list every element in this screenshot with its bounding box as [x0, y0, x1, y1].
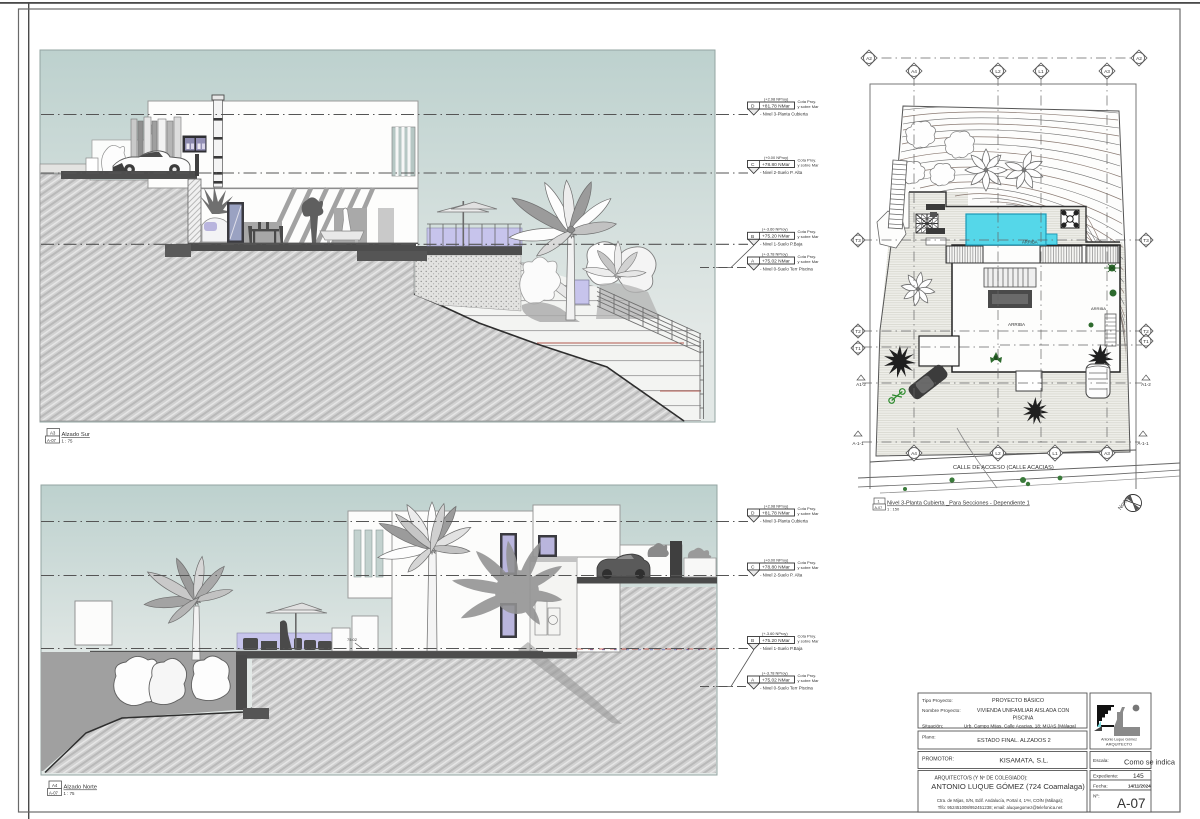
- svg-text:(+2.98 NProy): (+2.98 NProy): [764, 503, 789, 508]
- svg-text:1 : 75: 1 : 75: [64, 791, 76, 796]
- svg-text:A-07: A-07: [1117, 796, 1146, 811]
- svg-text:A-07: A-07: [47, 438, 57, 443]
- svg-text:1 : 150: 1 : 150: [887, 507, 900, 512]
- svg-text:(+0.00 NProy): (+0.00 NProy): [764, 557, 789, 562]
- svg-text:KISAMATA, S.L.: KISAMATA, S.L.: [999, 758, 1048, 765]
- svg-text:ARRIBA: ARRIBA: [1008, 322, 1026, 327]
- svg-text:Ctra. de Mijas, S/N, Edif. And: Ctra. de Mijas, S/N, Edif. Andalucía, Po…: [937, 798, 1063, 803]
- svg-text:Como se indica: Como se indica: [1124, 758, 1176, 767]
- svg-text:Expediente:: Expediente:: [1093, 774, 1118, 780]
- svg-text:T3: T3: [855, 238, 861, 244]
- svg-text:Nombre Proyecto:: Nombre Proyecto:: [922, 708, 961, 714]
- svg-text:CALLE DE ACCESO (CALLE ACACIAS: CALLE DE ACCESO (CALLE ACACIAS): [953, 465, 1054, 471]
- svg-text:+78.80 NMar: +78.80 NMar: [762, 564, 790, 570]
- svg-text:PROMOTOR:: PROMOTOR:: [922, 757, 954, 763]
- svg-text:- Nivel 2-Suelo P. Alta: - Nivel 2-Suelo P. Alta: [760, 572, 803, 577]
- svg-text:Tlfo: 952451008/952451238; ema: Tlfo: 952451008/952451238; email: aluque…: [938, 805, 1063, 810]
- svg-text:y sobre Mar: y sobre Mar: [798, 234, 820, 239]
- svg-text:A-1-1: A-1-1: [1137, 441, 1149, 446]
- svg-text:y sobre Mar: y sobre Mar: [798, 162, 820, 167]
- svg-text:(+2.98 NProy): (+2.98 NProy): [764, 96, 789, 101]
- svg-text:Alzado Sur: Alzado Sur: [62, 432, 90, 438]
- svg-text:y sobre Mar: y sobre Mar: [798, 565, 820, 570]
- svg-text:L2: L2: [995, 69, 1001, 75]
- svg-text:T2: T2: [855, 329, 861, 335]
- svg-text:(+-3.78 NProy): (+-3.78 NProy): [762, 251, 788, 256]
- svg-text:14/11/2024: 14/11/2024: [1128, 784, 1151, 789]
- svg-text:ARRIBA: ARRIBA: [1091, 306, 1106, 311]
- svg-text:+75.20 NMar: +75.20 NMar: [762, 638, 790, 644]
- svg-text:+75.20 NMar: +75.20 NMar: [762, 234, 790, 240]
- svg-text:Plano:: Plano:: [922, 735, 936, 741]
- svg-text:A1-2: A1-2: [856, 382, 866, 387]
- svg-text:A4: A4: [911, 69, 917, 75]
- svg-text:A2: A2: [866, 56, 872, 62]
- svg-text:y sobre Mar: y sobre Mar: [798, 104, 820, 109]
- svg-text:Situación:: Situación:: [922, 724, 943, 730]
- svg-text:- Nivel 2-Suelo P. Alta: - Nivel 2-Suelo P. Alta: [760, 170, 803, 175]
- svg-text:Nivel 3-Planta Cubierta _Para: Nivel 3-Planta Cubierta _Para Secciones …: [887, 501, 1030, 507]
- svg-text:Tipo Proyecto:: Tipo Proyecto:: [922, 698, 953, 704]
- svg-text:1: 1: [878, 500, 880, 504]
- svg-text:- Nivel 3-Planta Cubierta: - Nivel 3-Planta Cubierta: [760, 111, 808, 116]
- svg-text:L1: L1: [1038, 69, 1044, 75]
- svg-text:A-1-1: A-1-1: [852, 441, 864, 446]
- svg-text:Nº:: Nº:: [1093, 794, 1100, 800]
- svg-text:A2: A2: [1136, 56, 1142, 62]
- svg-text:ARQUITECTO/S (Y Nº DE COLEGIAD: ARQUITECTO/S (Y Nº DE COLEGIADO):: [934, 776, 1027, 782]
- svg-text:Urb. Campo Mijas, Calle Acacia: Urb. Campo Mijas, Calle Acacias, 18; MIJ…: [964, 724, 1077, 729]
- svg-text:A-07: A-07: [49, 790, 59, 795]
- svg-text:L1: L1: [1052, 451, 1058, 457]
- svg-text:A3: A3: [50, 430, 56, 435]
- svg-text:A4: A4: [52, 783, 58, 788]
- svg-text:T1: T1: [855, 346, 861, 352]
- svg-text:+75.02 NMar: +75.02 NMar: [762, 677, 790, 683]
- svg-text:- Nivel 0-Suelo Terr Piscina: - Nivel 0-Suelo Terr Piscina: [760, 685, 813, 690]
- svg-text:+81.78 NMar: +81.78 NMar: [762, 510, 790, 516]
- svg-text:ESTADO FINAL. ALZADOS 2: ESTADO FINAL. ALZADOS 2: [977, 738, 1051, 744]
- svg-text:A-07: A-07: [875, 506, 883, 510]
- svg-text:T1: T1: [1143, 339, 1149, 345]
- svg-text:+81.78 NMar: +81.78 NMar: [762, 103, 790, 109]
- svg-text:ARQUITECTO: ARQUITECTO: [1106, 742, 1132, 747]
- svg-text:L2: L2: [995, 451, 1001, 457]
- svg-text:PROYECTO BÁSICO: PROYECTO BÁSICO: [992, 697, 1044, 704]
- svg-text:Fecha:: Fecha:: [1093, 784, 1108, 790]
- svg-text:A3: A3: [1104, 451, 1110, 457]
- svg-text:+78.80 NMar: +78.80 NMar: [762, 162, 790, 168]
- svg-text:75.02: 75.02: [347, 637, 358, 642]
- svg-text:Escala:: Escala:: [1093, 758, 1109, 764]
- svg-text:PISCINA: PISCINA: [1013, 716, 1034, 722]
- svg-text:y sobre Mar: y sobre Mar: [798, 511, 820, 516]
- svg-text:145: 145: [1133, 773, 1144, 780]
- svg-text:(+0.00 NProy): (+0.00 NProy): [764, 155, 789, 160]
- svg-text:A3: A3: [1104, 69, 1110, 75]
- svg-text:T3: T3: [1143, 238, 1149, 244]
- svg-text:(+-3.60 NProy): (+-3.60 NProy): [762, 227, 788, 232]
- svg-text:VIVIENDA UNIFAMLIAR AISLADA CO: VIVIENDA UNIFAMLIAR AISLADA CON: [977, 708, 1070, 714]
- svg-text:y sobre Mar: y sobre Mar: [798, 638, 820, 643]
- svg-text:(+-3.78 NProy): (+-3.78 NProy): [762, 670, 788, 675]
- svg-text:y sobre Mar: y sobre Mar: [798, 678, 820, 683]
- svg-text:1 : 75: 1 : 75: [62, 439, 74, 444]
- svg-text:A4: A4: [911, 451, 917, 457]
- svg-text:y sobre Mar: y sobre Mar: [798, 259, 820, 264]
- svg-text:Alzado Norte: Alzado Norte: [64, 785, 98, 791]
- svg-text:A1-2: A1-2: [1141, 382, 1151, 387]
- svg-text:- Nivel 0-Suelo Terr Piscina: - Nivel 0-Suelo Terr Piscina: [760, 266, 813, 271]
- svg-text:- Nivel 1-Suelo P.Baja: - Nivel 1-Suelo P.Baja: [760, 646, 803, 651]
- svg-text:ANTONIO LUQUE GÓMEZ (724 Coama: ANTONIO LUQUE GÓMEZ (724 Coamalaga): [931, 782, 1085, 791]
- svg-text:(+-3.60 NProy): (+-3.60 NProy): [762, 631, 788, 636]
- svg-text:+75.02 NMar: +75.02 NMar: [762, 258, 790, 264]
- svg-text:- Nivel 1-Suelo P.Baja: - Nivel 1-Suelo P.Baja: [760, 242, 803, 247]
- svg-text:- Nivel 3-Planta Cubierta: - Nivel 3-Planta Cubierta: [760, 518, 808, 523]
